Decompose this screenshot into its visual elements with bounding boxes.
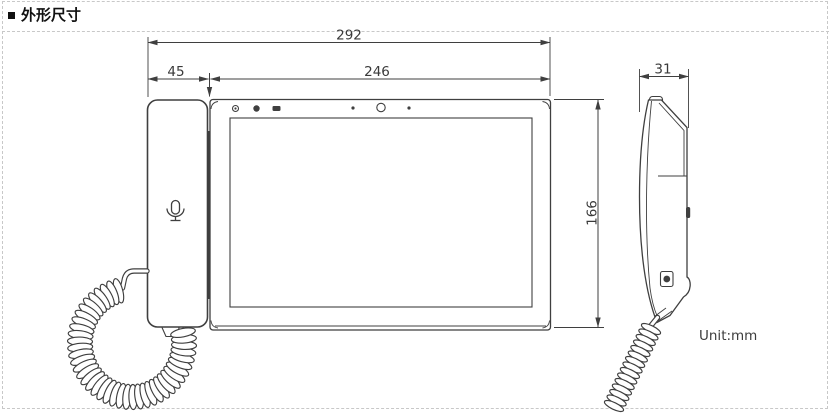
side-coiled-cord [603,321,662,413]
side-profile [640,100,691,323]
mic-hole-icon [351,106,354,109]
side-port-icon [663,276,670,283]
light-sensor-icon [407,106,410,109]
side-view [603,97,690,414]
dim-handset-width: 45 [167,64,184,80]
dim-height: 166 [585,200,601,226]
main-unit-body [210,100,551,331]
indicator-led-icon [253,105,259,111]
dim-overall-width: 292 [336,28,362,44]
dim-depth: 31 [654,62,671,78]
dim-panel-width: 246 [364,64,390,80]
front-view [67,100,550,410]
ir-window-icon [273,106,281,111]
unit-label: Unit:mm [699,328,757,344]
dimension-drawing: 292 45 246 166 31 Unit:mm [0,0,831,415]
spec-sheet-page: { "title": { "bullet_icon": "square-bull… [0,0,831,415]
indicator-led-dot-icon [234,107,236,109]
side-button [686,207,690,218]
